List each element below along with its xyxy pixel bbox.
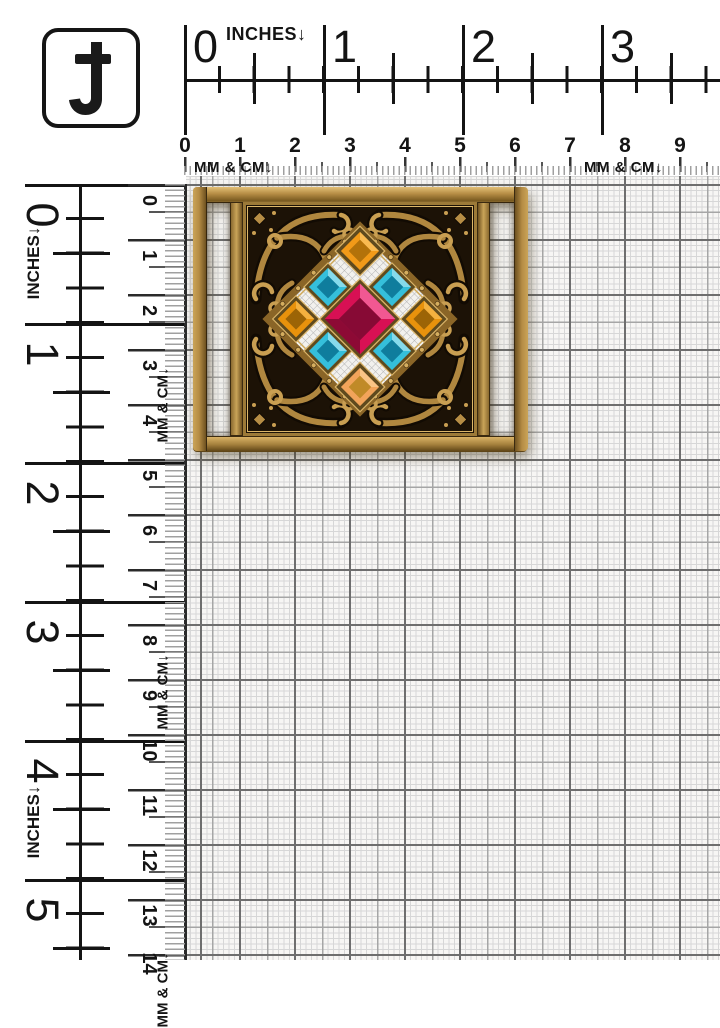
buckle-frame-top bbox=[193, 187, 527, 203]
top-inch-number-2: 2 bbox=[471, 24, 496, 69]
product-photo-page: { "logo": { "glyph": "J" }, "rulers": { … bbox=[0, 0, 720, 960]
left-cm-number-7: 7 bbox=[136, 572, 163, 599]
left-cm-number-12: 12 bbox=[136, 847, 163, 874]
top-inch-unit-label: INCHES↓ bbox=[226, 24, 307, 45]
left-cm-number-0: 0 bbox=[136, 187, 163, 214]
buckle-belt-slot-right bbox=[490, 202, 514, 436]
top-cm-number-7: 7 bbox=[564, 135, 576, 156]
left-inch-quarter-ticks bbox=[66, 217, 104, 960]
top-cm-number-8: 8 bbox=[619, 135, 631, 156]
buckle-slot-bar-right bbox=[477, 202, 490, 436]
top-mm-cm-label-right: MM & CM↓ bbox=[584, 159, 663, 176]
left-cm-number-8: 8 bbox=[136, 627, 163, 654]
buckle-slot-bar-left bbox=[230, 202, 243, 436]
left-cm-number-13: 13 bbox=[136, 902, 163, 929]
buckle-frame-bottom bbox=[193, 436, 527, 452]
left-inch-number-3: 3 bbox=[20, 609, 66, 655]
left-inch-unit-label-lower: INCHES↓ bbox=[24, 786, 44, 859]
left-cm-number-6: 6 bbox=[136, 517, 163, 544]
buckle-filigree-panel bbox=[243, 202, 477, 436]
brand-logo bbox=[42, 28, 140, 128]
left-mm-ticks bbox=[165, 184, 185, 960]
left-cm-number-10: 10 bbox=[136, 737, 163, 764]
left-cm-number-5: 5 bbox=[136, 462, 163, 489]
top-inch-quarter-ticks bbox=[218, 66, 720, 93]
top-cm-number-0: 0 bbox=[179, 135, 191, 156]
top-mm-cm-label-left: MM & CM↓ bbox=[194, 159, 273, 176]
left-cm-number-11: 11 bbox=[136, 792, 163, 819]
left-cm-number-1: 1 bbox=[136, 242, 163, 269]
top-cm-number-6: 6 bbox=[509, 135, 521, 156]
left-mm-cm-label-middle: MM & CM↓ bbox=[155, 655, 172, 730]
left-mm-cm-label-bottom: MM & CM↓ bbox=[155, 953, 172, 1028]
logo-hook bbox=[69, 88, 102, 115]
top-cm-number-2: 2 bbox=[289, 135, 301, 156]
buckle-frame-left bbox=[193, 187, 207, 451]
top-inch-number-1: 1 bbox=[332, 24, 357, 69]
left-inch-unit-label-upper: INCHES↓ bbox=[24, 227, 44, 300]
logo-stem bbox=[91, 42, 102, 92]
top-inch-number-0: 0 bbox=[193, 24, 218, 69]
top-cm-number-3: 3 bbox=[344, 135, 356, 156]
logo-crossbar bbox=[75, 54, 111, 64]
buckle-frame-right bbox=[514, 187, 528, 451]
brand-logo-j-glyph bbox=[64, 40, 118, 116]
belt-buckle-product bbox=[193, 187, 527, 451]
top-cm-number-9: 9 bbox=[674, 135, 686, 156]
left-mm-cm-label-upper: MM & CM↓ bbox=[155, 368, 172, 443]
top-inch-number-3: 3 bbox=[610, 24, 635, 69]
left-inch-number-2: 2 bbox=[20, 470, 66, 516]
top-cm-number-1: 1 bbox=[234, 135, 246, 156]
left-inch-number-1: 1 bbox=[20, 331, 66, 377]
buckle-belt-slot-left bbox=[206, 202, 230, 436]
left-inch-number-5: 5 bbox=[20, 887, 66, 933]
top-cm-number-4: 4 bbox=[399, 135, 411, 156]
top-cm-number-5: 5 bbox=[454, 135, 466, 156]
left-cm-number-2: 2 bbox=[136, 297, 163, 324]
